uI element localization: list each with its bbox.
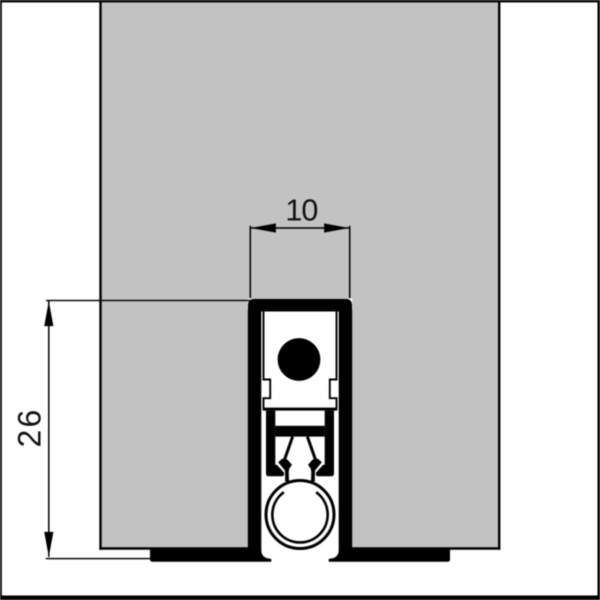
svg-text:10: 10 xyxy=(285,193,317,227)
svg-text:26: 26 xyxy=(12,408,48,448)
